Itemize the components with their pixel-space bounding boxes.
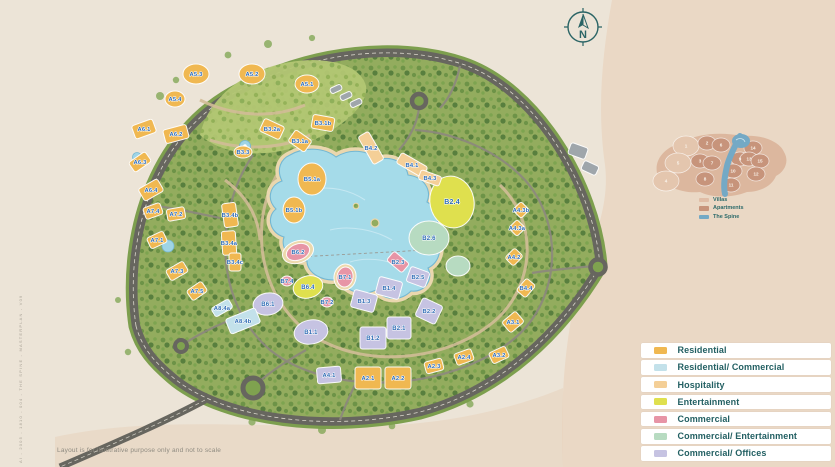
- inset-parcel-number-11: 11: [729, 183, 734, 188]
- plot-label-A4.2: A4.2: [507, 255, 520, 261]
- side-code-text: AI - 2005 - 1810 - 004 - THE SPINE - MAS…: [18, 295, 23, 463]
- legend-label: Residential: [678, 345, 727, 355]
- inset-legend: VillasApartmentsThe Spine: [699, 197, 744, 222]
- legend-item-hospitality: Hospitality: [641, 377, 831, 392]
- plot-label-A5.3: A5.3: [189, 72, 203, 78]
- legend-label: Commercial: [678, 414, 731, 424]
- legend-label: Commercial/ Offices: [678, 448, 767, 458]
- inset-legend-item-the-spine: The Spine: [699, 214, 744, 220]
- legend-item-residential-commercial: Residential/ Commercial: [641, 360, 831, 375]
- plot-label-A6.1: A6.1: [137, 127, 151, 133]
- plot-label-B5.1a: B5.1a: [304, 177, 321, 183]
- plot-label-B5.1b: B5.1b: [286, 208, 303, 214]
- plot-label-A7.3: A7.3: [170, 269, 184, 275]
- inset-spine-lagoon: [732, 134, 750, 148]
- island: [353, 203, 359, 209]
- plot-label-A8.4b: A8.4b: [235, 319, 252, 325]
- plot-label-A2.4: A2.4: [457, 355, 471, 361]
- inset-parcel-number-13: 13: [746, 157, 752, 162]
- inset-legend-label: Apartments: [713, 205, 744, 211]
- plot-label-B3.4b: B3.4b: [222, 213, 239, 219]
- inset-parcel-number-14: 14: [750, 146, 756, 151]
- plot-label-A6.3: A6.3: [133, 160, 147, 166]
- plot-label-B2.2: B2.2: [422, 309, 435, 315]
- legend-label: Residential/ Commercial: [678, 362, 785, 372]
- plot-label-A6.4: A6.4: [144, 188, 158, 194]
- plot-label-B3.1b: B3.1b: [315, 121, 332, 127]
- plot-label-B3.3: B3.3: [236, 150, 250, 156]
- inset-legend-swatch: [699, 215, 709, 220]
- plot-label-B4.3: B4.3: [423, 176, 437, 182]
- inset-legend-label: Villas: [713, 197, 727, 203]
- plot-label-A3.2: A3.2: [492, 353, 505, 359]
- inset-legend-swatch: [699, 198, 709, 203]
- legend-swatch: [654, 347, 667, 354]
- plot-label-A5.1: A5.1: [300, 82, 314, 88]
- plot-label-A4.3b: A4.3b: [513, 208, 530, 214]
- legend-label: Entertainment: [678, 397, 740, 407]
- legend-swatch: [654, 450, 667, 457]
- plot-label-B1.3: B1.3: [357, 299, 371, 305]
- plot-block: [581, 160, 600, 176]
- plot-label-A2.1: A2.1: [361, 376, 375, 382]
- legend-item-commercial: Commercial: [641, 412, 831, 427]
- compass-north-icon: N: [564, 8, 602, 46]
- plot-label-A8.4a: A8.4a: [214, 306, 231, 312]
- inset-parcel-number-10: 10: [730, 169, 736, 174]
- inset-parcel-number-1: 1: [685, 144, 688, 149]
- plot-label-B6.4: B6.4: [301, 285, 315, 291]
- inset-legend-item-apartments: Apartments: [699, 205, 744, 211]
- legend-item-entertainment: Entertainment: [641, 395, 831, 410]
- plot-label-B3.1a: B3.1a: [292, 139, 309, 145]
- plot-label-B3.4c: B3.4c: [227, 260, 244, 266]
- legend-item-commercial-entertainment: Commercial/ Entertainment: [641, 429, 831, 444]
- inset-parcel-number-9: 9: [739, 157, 742, 162]
- legend-panel: ResidentialResidential/ CommercialHospit…: [641, 343, 831, 461]
- inset-parcel-number-15: 15: [757, 159, 763, 164]
- plot-label-B1.2: B1.2: [366, 336, 380, 342]
- inset-parcel-number-8: 8: [704, 177, 707, 182]
- plot-label-B2.5: B2.5: [411, 275, 425, 281]
- plot-label-A5.2: A5.2: [245, 72, 258, 78]
- plot-label-A3.1: A3.1: [506, 320, 520, 326]
- plot-label-B4.4: B4.4: [519, 286, 533, 292]
- legend-swatch: [654, 433, 667, 440]
- inset-parcel-number-5: 5: [677, 161, 680, 166]
- plot-label-B7.1: B7.1: [338, 275, 352, 281]
- legend-swatch: [654, 381, 667, 388]
- inset-parcel-number-2: 2: [706, 141, 709, 146]
- plot-label-A5.4: A5.4: [168, 97, 182, 103]
- plot-label-B4.2: B4.2: [364, 146, 377, 152]
- plot-label-A2.3: A2.3: [427, 364, 441, 370]
- plot-label-B7.2: B7.2: [320, 300, 333, 306]
- plot-label-A7.5: A7.5: [190, 289, 204, 295]
- disclaimer-text: Layout is for illustrative purpose only …: [57, 447, 221, 454]
- compass-label: N: [579, 29, 587, 41]
- plot-label-A7.1: A7.1: [150, 238, 164, 244]
- plot-label-A7.2: A7.2: [169, 212, 182, 218]
- plot-label-B2.3: B2.3: [391, 260, 405, 266]
- inset-parcel-number-4: 4: [665, 179, 668, 184]
- legend-swatch: [654, 416, 667, 423]
- legend-item-residential: Residential: [641, 343, 831, 358]
- plot-block: [446, 256, 470, 276]
- plot-label-A4.3a: A4.3a: [509, 226, 526, 232]
- plot-label-A4.1: A4.1: [322, 373, 336, 379]
- inset-legend-swatch: [699, 206, 709, 211]
- plot-label-B7.4: B7.4: [280, 279, 294, 285]
- island: [371, 219, 379, 227]
- legend-label: Hospitality: [678, 380, 725, 390]
- plot-label-B3.2a: B3.2a: [264, 127, 281, 133]
- inset-parcel-number-12: 12: [753, 172, 759, 177]
- legend-swatch: [654, 364, 667, 371]
- legend-swatch: [654, 398, 667, 405]
- plot-label-A2.2: A2.2: [391, 376, 404, 382]
- legend-item-commercial-offices: Commercial/ Offices: [641, 446, 831, 461]
- inset-legend-label: The Spine: [713, 214, 739, 220]
- inset-parcel-number-3: 3: [699, 159, 702, 164]
- inset-parcel-number-6: 6: [720, 143, 723, 148]
- plot-label-A6.2: A6.2: [169, 132, 182, 138]
- inset-parcel-number-7: 7: [711, 161, 714, 166]
- legend-label: Commercial/ Entertainment: [678, 431, 798, 441]
- plot-label-B4.1: B4.1: [405, 163, 419, 169]
- plot-label-B1.4: B1.4: [382, 286, 396, 292]
- plot-label-B2.4: B2.4: [444, 199, 460, 206]
- plot-label-B2.1: B2.1: [392, 326, 406, 332]
- plot-label-B1.1: B1.1: [304, 330, 318, 336]
- inset-legend-item-villas: Villas: [699, 197, 744, 203]
- plot-label-B6.1: B6.1: [261, 302, 275, 308]
- plot-label-B6.2: B6.2: [291, 250, 304, 256]
- plot-label-A7.4: A7.4: [146, 209, 160, 215]
- plot-label-B3.4a: B3.4a: [221, 241, 238, 247]
- plot-label-B2.6: B2.6: [422, 236, 436, 242]
